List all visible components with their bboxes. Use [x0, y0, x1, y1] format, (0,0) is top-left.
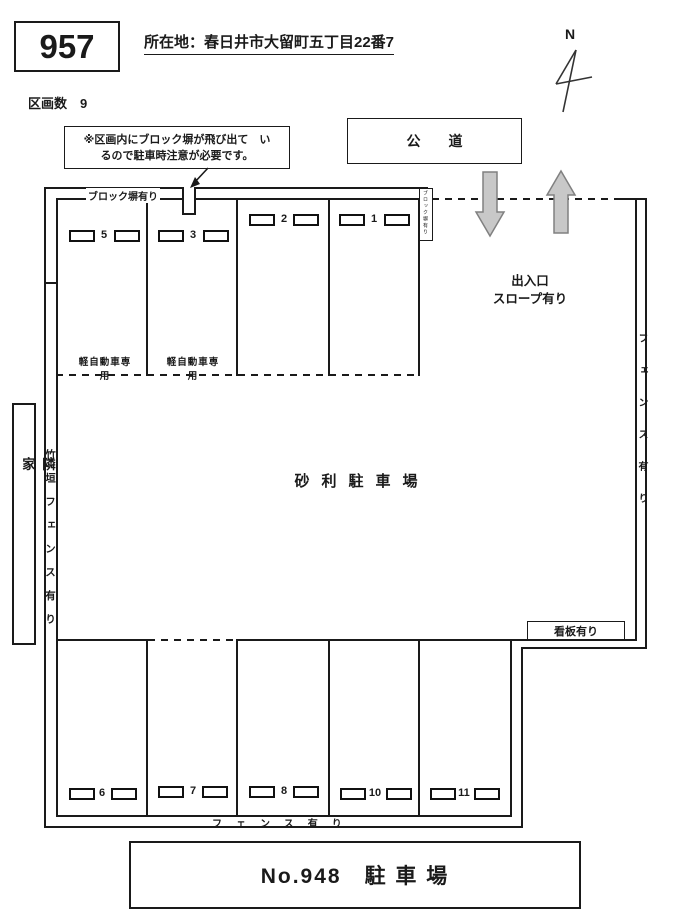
space-5-kei-only-label: 軽自動車専用 [74, 354, 136, 382]
block-wall-small-box: ブロック塀有り [419, 188, 433, 241]
space-1-marker-left [339, 214, 365, 226]
caution-note-box: ※区画内にブロック塀が飛び出て い るので駐車時注意が必要です。 [64, 126, 290, 169]
lot-number-box: 957 [14, 21, 120, 72]
mid-boundary-dashed [148, 639, 238, 641]
top-row-divider-1 [146, 198, 148, 376]
space-3-marker-right [203, 230, 229, 242]
space-10-number: 10 [365, 787, 385, 799]
signboard-label: 看板有り [554, 623, 598, 639]
space-11-number: 11 [454, 787, 474, 799]
space-7-marker-right [202, 786, 228, 798]
boundary-left-tick [44, 282, 58, 284]
compass-needle-icon [556, 50, 592, 112]
space-1-number: 1 [366, 213, 382, 225]
bottom-row-divider-2 [236, 639, 238, 817]
space-8-marker-right [293, 786, 319, 798]
space-11-marker-left [430, 788, 456, 800]
neighbor-house-box: 隣家 [12, 403, 36, 645]
space-2-marker-right [293, 214, 319, 226]
compass-north-label: N [565, 26, 575, 42]
space-3-marker-left [158, 230, 184, 242]
exit-up-arrow-icon [547, 171, 575, 233]
space-1-marker-right [384, 214, 410, 226]
top-row-divider-2 [236, 198, 238, 376]
signboard-box: 看板有り [527, 621, 625, 640]
note-arrow-icon [190, 168, 208, 188]
space-3-number: 3 [185, 229, 201, 241]
bottom-row-divider-1 [146, 639, 148, 817]
bottom-fence-label: フェンス有り [212, 815, 356, 830]
space-10-marker-right [386, 788, 412, 800]
caution-note-line2: るので駐車時注意が必要です。 [65, 148, 289, 164]
footer-title-box: No.948 駐 車 場 [129, 841, 581, 909]
space-6-number: 6 [94, 787, 110, 799]
space-8-number: 8 [276, 785, 292, 797]
right-fence-label: フェンス有り [634, 333, 649, 525]
caution-note-line1: ※区画内にブロック塀が飛び出て い [65, 132, 289, 148]
space-8-marker-left [249, 786, 275, 798]
space-7-number: 7 [185, 785, 201, 797]
space-7-marker-left [158, 786, 184, 798]
parking-lot-diagram: 957 所在地：春日井市大留町五丁目22番7 区画数 9 ※区画内にブロック塀が… [0, 0, 699, 915]
public-road-label: 公 道 [407, 131, 463, 151]
space-6-marker-left [69, 788, 95, 800]
space-10-marker-left [340, 788, 366, 800]
space-5-marker-left [69, 230, 95, 242]
mid-boundary-solid-left [56, 639, 148, 641]
entrance-label: 出入口 スロープ有り [465, 272, 595, 308]
lot-number: 957 [16, 23, 118, 70]
boundary-right-lower-inner [510, 639, 512, 817]
block-wall-small-label: ブロック塀有り [422, 190, 429, 236]
entrance-label-line2: スロープ有り [465, 290, 595, 308]
space-5-marker-right [114, 230, 140, 242]
boundary-top-right-connector [617, 198, 647, 200]
space-11-marker-right [474, 788, 500, 800]
bamboo-fence-label: 竹垣フェンス有り [43, 449, 58, 637]
address-label: 所在地：春日井市大留町五丁目22番7 [144, 31, 394, 55]
section-count-label: 区画数 9 [28, 93, 87, 112]
ground-type-label: 砂利駐車場 [257, 470, 467, 491]
space-5-number: 5 [96, 229, 112, 241]
footer-title: No.948 駐 車 場 [261, 860, 450, 890]
block-wall-notch [182, 187, 196, 215]
space-6-marker-right [111, 788, 137, 800]
top-row-divider-3 [328, 198, 330, 376]
space-2-number: 2 [276, 213, 292, 225]
boundary-step-outer [521, 647, 647, 649]
entrance-label-line1: 出入口 [465, 272, 595, 290]
entry-down-arrow-icon [476, 172, 504, 236]
bottom-row-divider-3 [328, 639, 330, 817]
bottom-row-divider-4 [418, 639, 420, 817]
space-3-kei-only-label: 軽自動車専用 [162, 354, 224, 382]
road-boundary-dashed-line [432, 198, 618, 200]
block-wall-label: ブロック塀有り [86, 188, 160, 203]
public-road-box: 公 道 [347, 118, 522, 164]
space-2-marker-left [249, 214, 275, 226]
boundary-right-lower-outer [521, 647, 523, 828]
